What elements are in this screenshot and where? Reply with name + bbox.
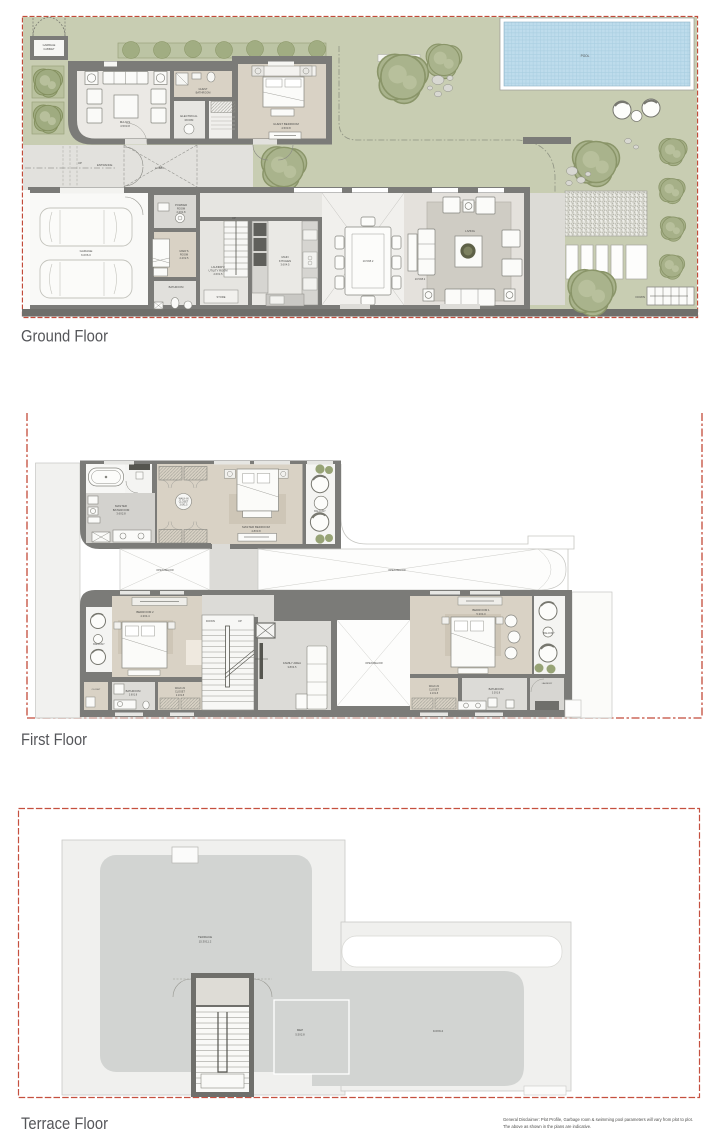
svg-text:4.5X3.8: 4.5X3.8 (281, 126, 291, 130)
svg-text:ROOM: ROOM (185, 118, 194, 122)
svg-text:GUEST: GUEST (199, 87, 208, 91)
svg-text:LAUNDRY/: LAUNDRY/ (211, 265, 225, 269)
svg-text:10.5X8.2: 10.5X8.2 (415, 277, 426, 281)
svg-text:9.0X9.2: 9.0X9.2 (433, 1029, 444, 1033)
svg-text:DOWN: DOWN (206, 619, 215, 623)
svg-text:TERRACE: TERRACE (198, 935, 212, 939)
svg-text:BALCONY: BALCONY (543, 632, 555, 635)
svg-text:OPEN BELOW: OPEN BELOW (365, 661, 383, 665)
svg-text:GARBAGE: GARBAGE (43, 43, 56, 47)
svg-text:3.6X4.5: 3.6X4.5 (281, 263, 290, 267)
svg-text:3.3X1.8: 3.3X1.8 (492, 691, 501, 694)
svg-text:OPEN BELOW: OPEN BELOW (156, 568, 174, 572)
svg-text:3.6X1.5: 3.6X1.5 (180, 505, 189, 507)
svg-text:LIVING: LIVING (465, 229, 476, 233)
svg-text:General Disclaimer: Plot Profi: General Disclaimer: Plot Profile, Garbag… (503, 1117, 693, 1122)
svg-text:MEP: MEP (297, 1028, 303, 1032)
svg-text:BATHROOM: BATHROOM (113, 508, 130, 512)
svg-text:OPEN BELOW: OPEN BELOW (388, 568, 406, 572)
svg-text:POWDER: POWDER (175, 203, 187, 207)
svg-text:MASTER BEDROOM: MASTER BEDROOM (242, 525, 270, 529)
svg-text:CLOSET: CLOSET (92, 689, 101, 691)
svg-text:10.5X8.2: 10.5X8.2 (363, 259, 374, 263)
svg-text:BALCONY: BALCONY (93, 643, 105, 646)
svg-text:5.5X2.8: 5.5X2.8 (295, 1032, 305, 1036)
svg-text:LAUNDRY: LAUNDRY (542, 682, 553, 685)
svg-text:POOL: POOL (581, 54, 590, 58)
svg-text:2.2X2.5: 2.2X2.5 (180, 256, 189, 260)
svg-text:2.2X1.8: 2.2X1.8 (177, 210, 186, 214)
svg-text:STORE: STORE (217, 295, 226, 299)
svg-text:UP: UP (238, 619, 242, 623)
svg-text:BEDROOM 2: BEDROOM 2 (136, 610, 154, 614)
svg-text:BATHROOM: BATHROOM (196, 90, 211, 94)
svg-text:15.3X11.2: 15.3X11.2 (199, 939, 212, 943)
svg-text:3.6X1.8: 3.6X1.8 (129, 693, 138, 696)
svg-text:First Floor: First Floor (21, 730, 87, 749)
svg-text:ENTRANCE: ENTRANCE (97, 163, 113, 167)
svg-text:BALCONY: BALCONY (314, 510, 326, 513)
svg-text:2.1X1.8: 2.1X1.8 (176, 694, 185, 697)
svg-text:LOBBY: LOBBY (155, 166, 164, 170)
svg-text:CABINET: CABINET (43, 47, 55, 51)
svg-text:UP: UP (78, 161, 82, 165)
svg-text:DOWN: DOWN (636, 295, 646, 299)
svg-text:2.1X1.8: 2.1X1.8 (430, 692, 439, 695)
svg-text:2.6X1.5: 2.6X1.5 (214, 272, 223, 276)
svg-text:Ground Floor: Ground Floor (21, 327, 108, 346)
svg-text:Terrace Floor: Terrace Floor (21, 1114, 108, 1133)
svg-text:3.8X4.5: 3.8X4.5 (288, 665, 297, 669)
svg-text:The above as shown in the plan: The above as shown in the plans are indi… (503, 1124, 591, 1129)
svg-text:MAID'S: MAID'S (179, 249, 188, 253)
svg-text:FAMILY AREA: FAMILY AREA (283, 661, 301, 665)
svg-text:UTILITY ROOM: UTILITY ROOM (208, 269, 228, 273)
svg-text:KITCHEN: KITCHEN (279, 259, 291, 263)
svg-text:CLOSET: CLOSET (179, 501, 189, 504)
svg-text:BATHROOM: BATHROOM (169, 285, 184, 289)
svg-text:3.6X2.8: 3.6X2.8 (116, 512, 126, 516)
svg-text:4.8X3.8: 4.8X3.8 (251, 529, 261, 533)
svg-text:5.3X4.0: 5.3X4.0 (476, 612, 486, 616)
svg-text:GUEST BEDROOM: GUEST BEDROOM (273, 122, 299, 126)
svg-text:ROOM: ROOM (177, 207, 186, 211)
svg-text:UP: UP (232, 216, 236, 220)
svg-text:BATHROOM: BATHROOM (126, 689, 141, 693)
svg-text:6.0X6.0: 6.0X6.0 (81, 253, 91, 257)
svg-text:ROOM: ROOM (180, 253, 189, 257)
svg-text:4.3X4.4: 4.3X4.4 (140, 614, 150, 618)
svg-text:4.5X3.8: 4.5X3.8 (120, 124, 130, 128)
svg-text:BATHROOM: BATHROOM (489, 687, 504, 691)
svg-text:BEDROOM 1: BEDROOM 1 (472, 608, 490, 612)
